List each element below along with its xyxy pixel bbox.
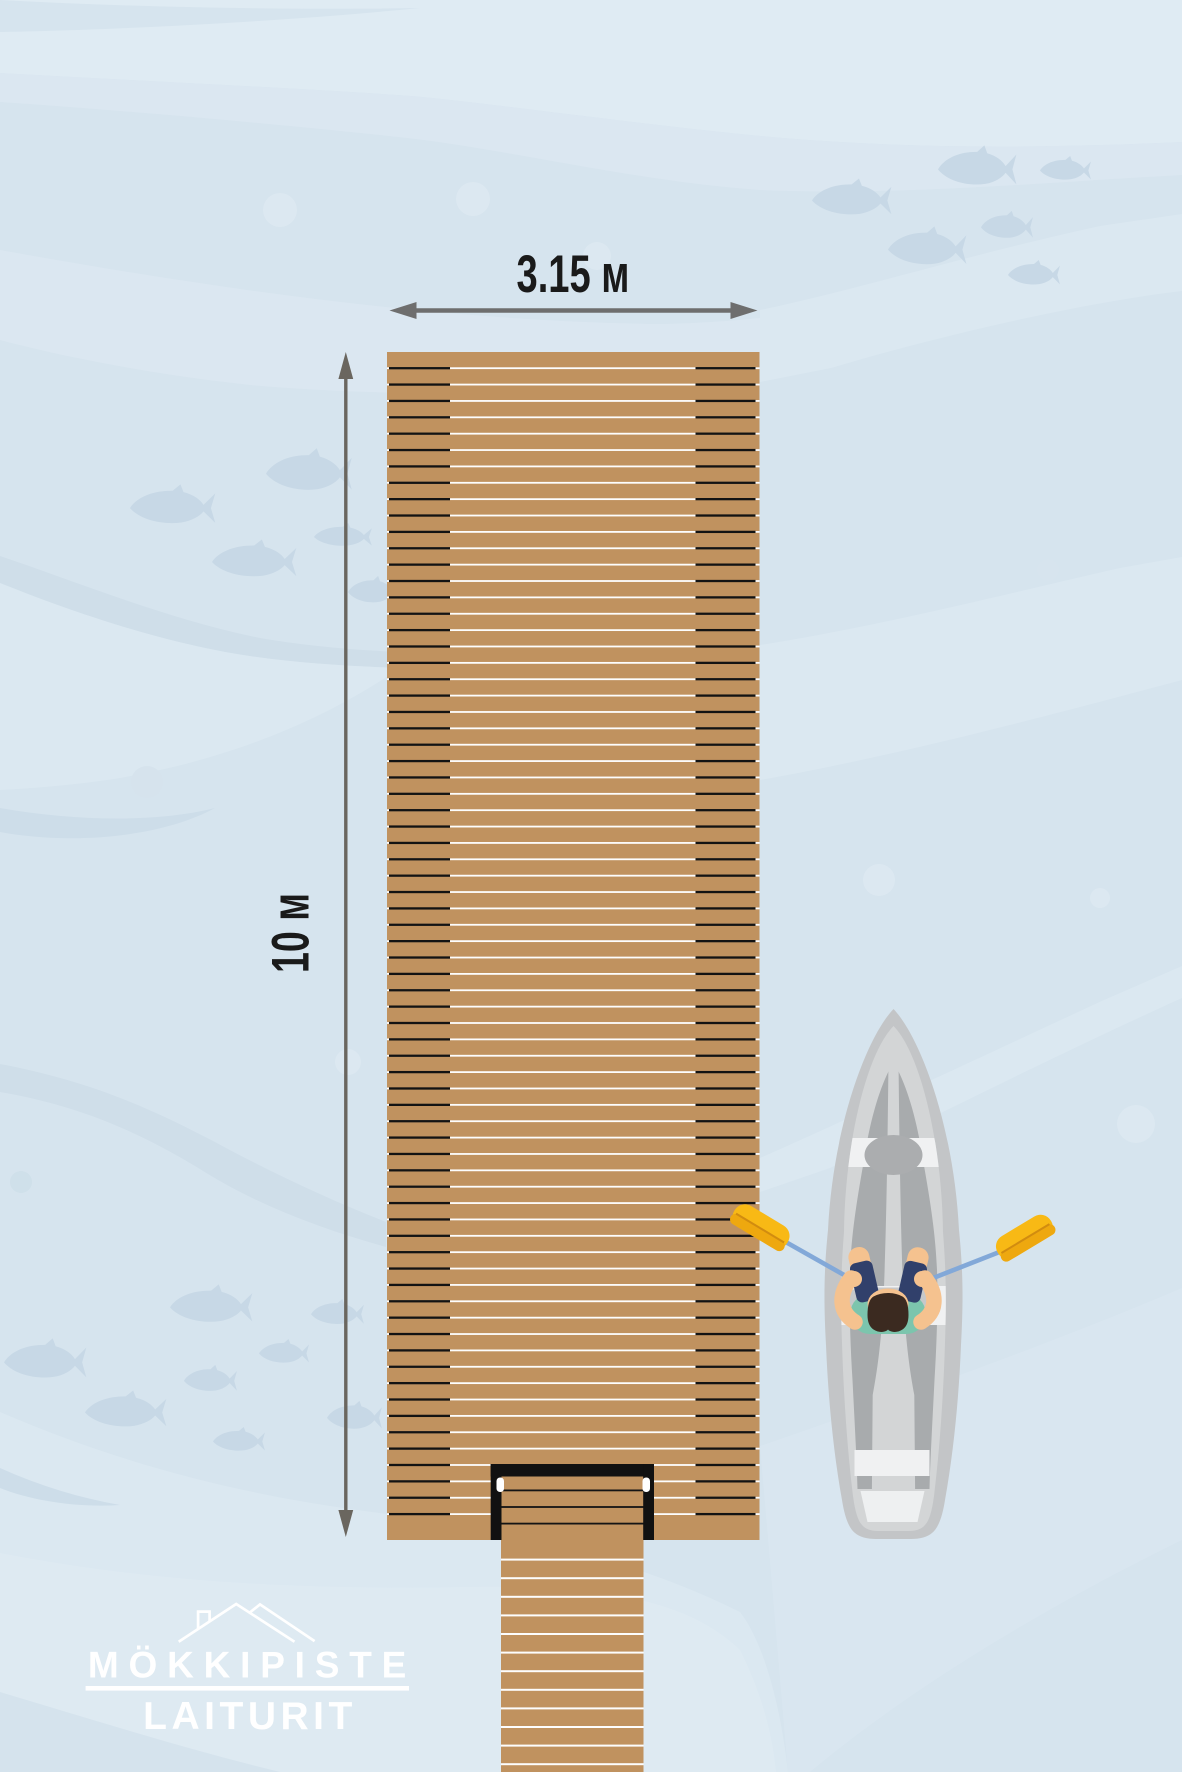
svg-text:10 м: 10 м: [262, 893, 321, 973]
svg-text:MÖKKIPISTE: MÖKKIPISTE: [88, 1645, 416, 1686]
svg-text:3.15 м: 3.15 м: [517, 245, 630, 304]
svg-text:LAITURIT: LAITURIT: [143, 1695, 357, 1738]
